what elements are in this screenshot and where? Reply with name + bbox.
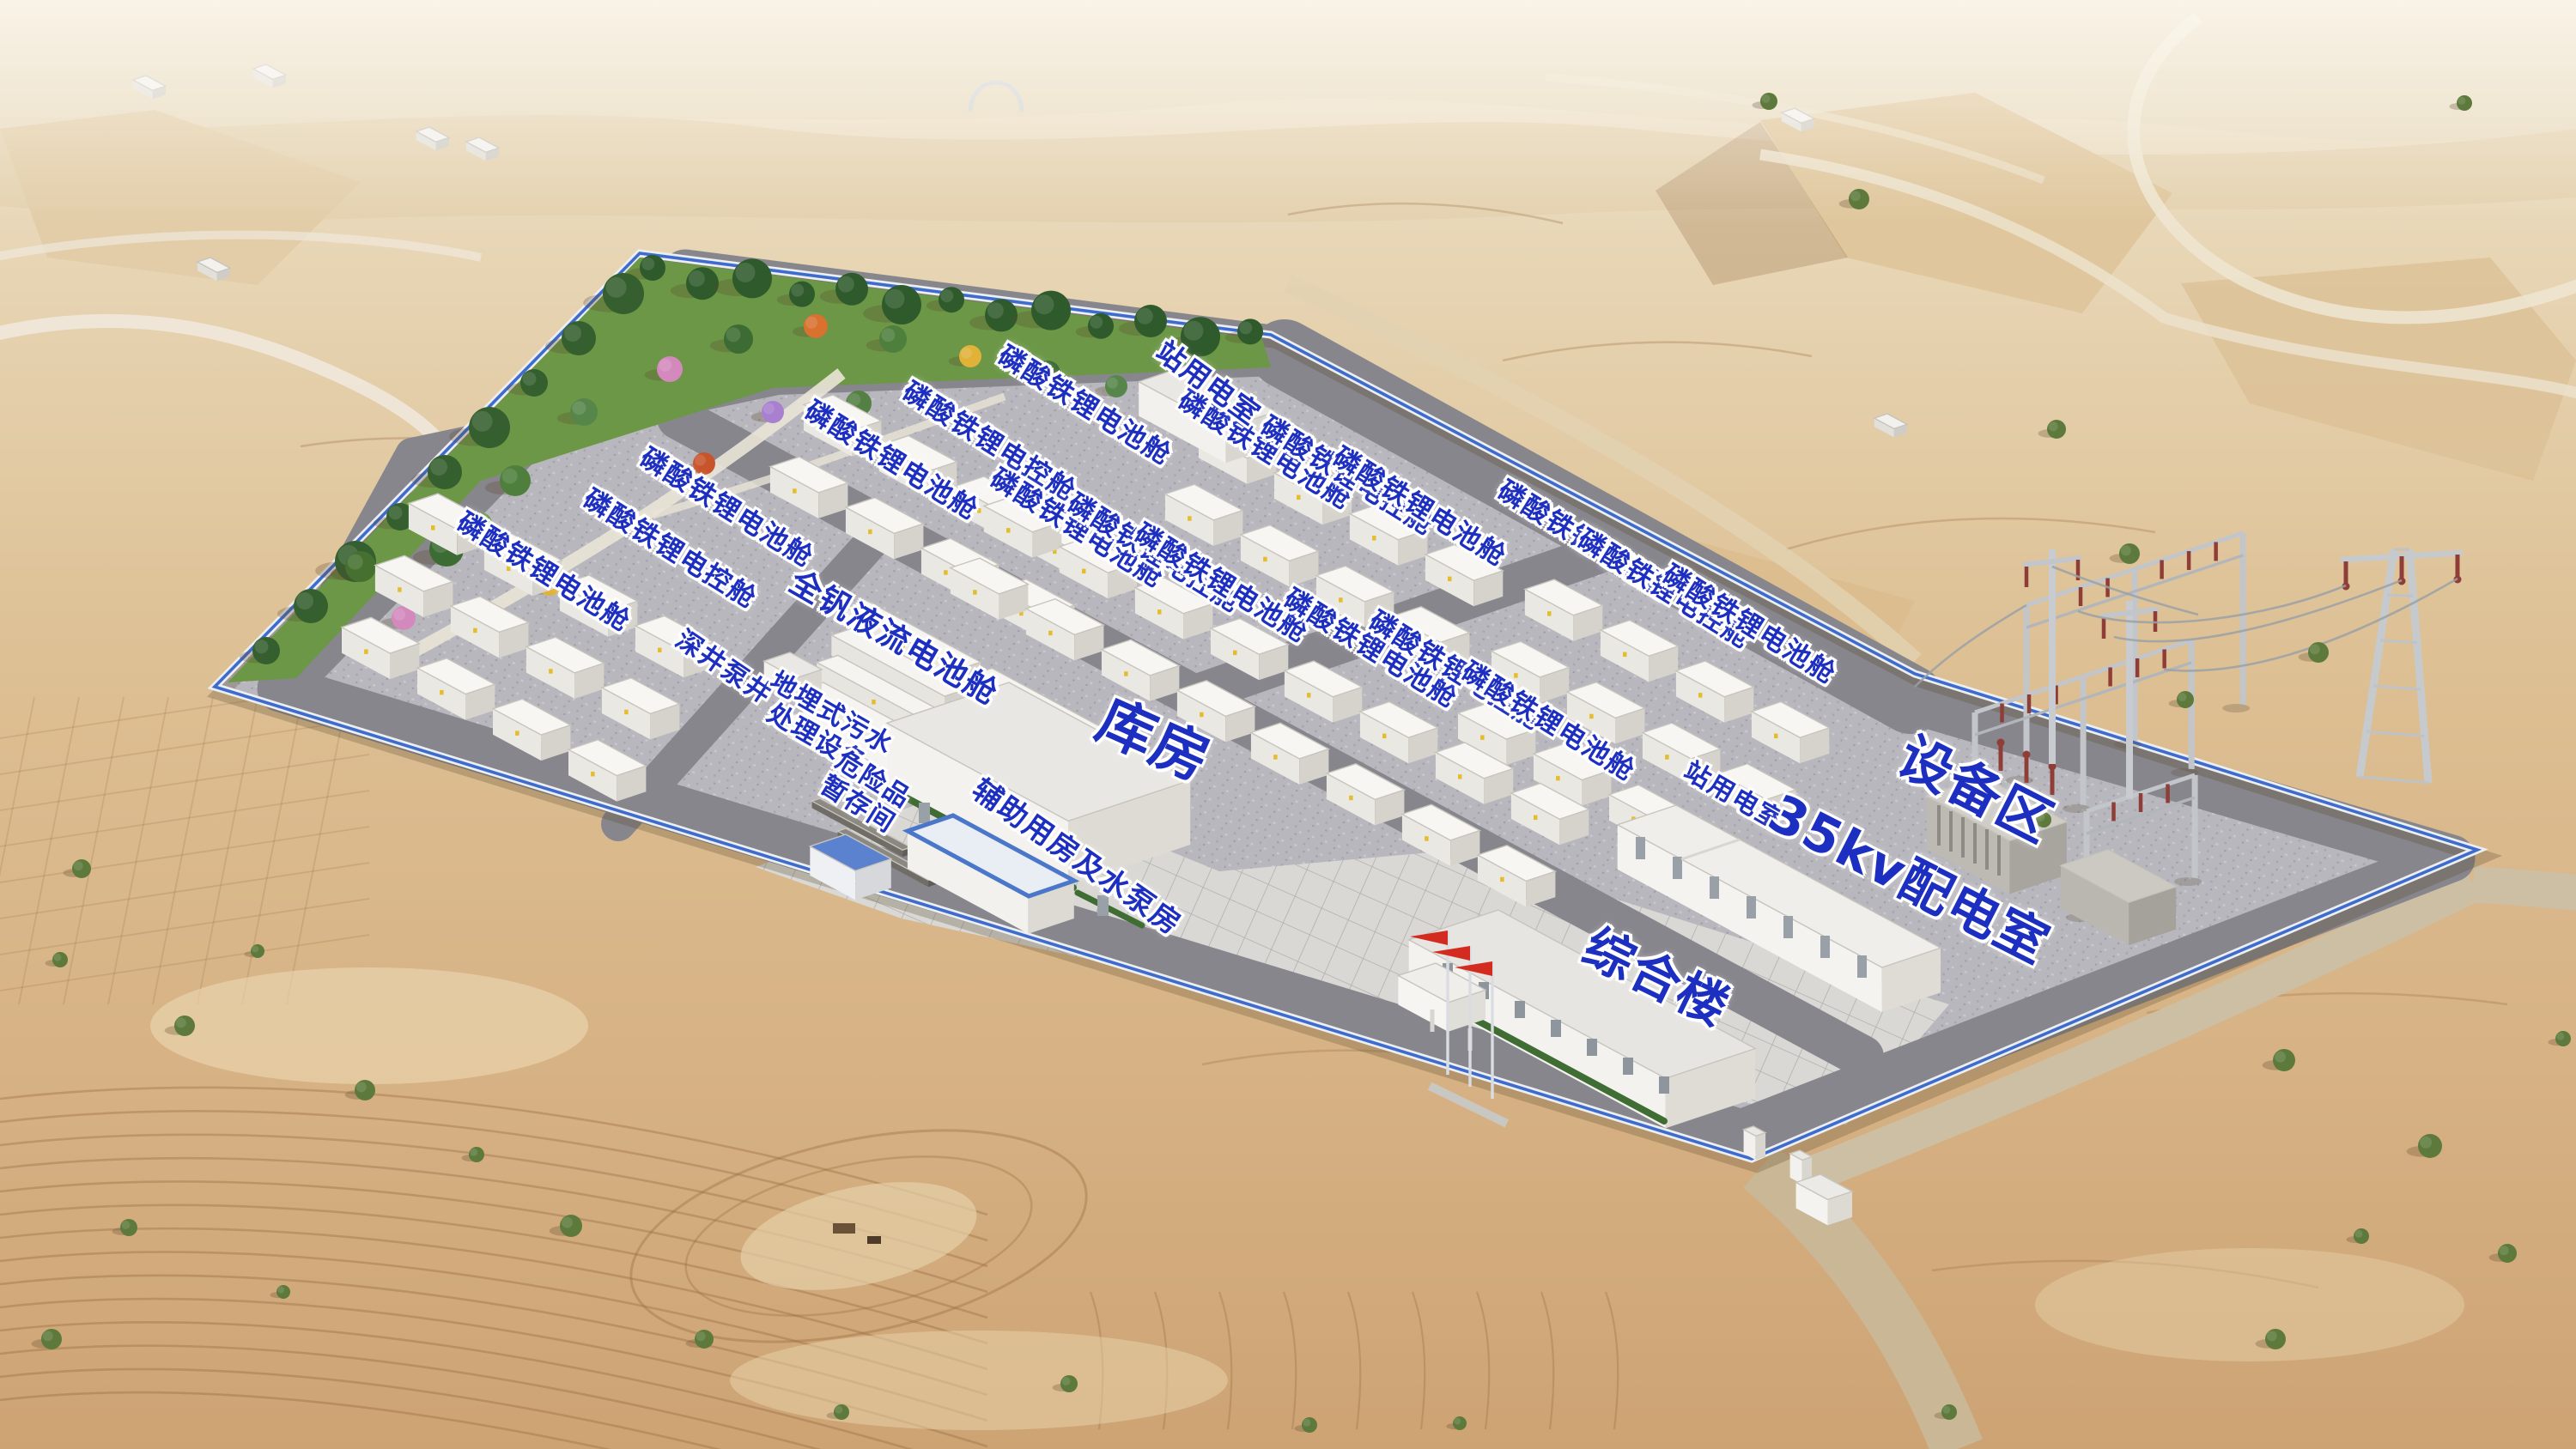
rendered-scene [0, 0, 2576, 1449]
energy-storage-station-aerial-render: 磷酸铁锂电池舱磷酸铁锂电控舱磷酸铁锂电池舱磷酸铁锂电池舱磷酸铁锂电控舱磷酸铁锂电… [0, 0, 2576, 1449]
